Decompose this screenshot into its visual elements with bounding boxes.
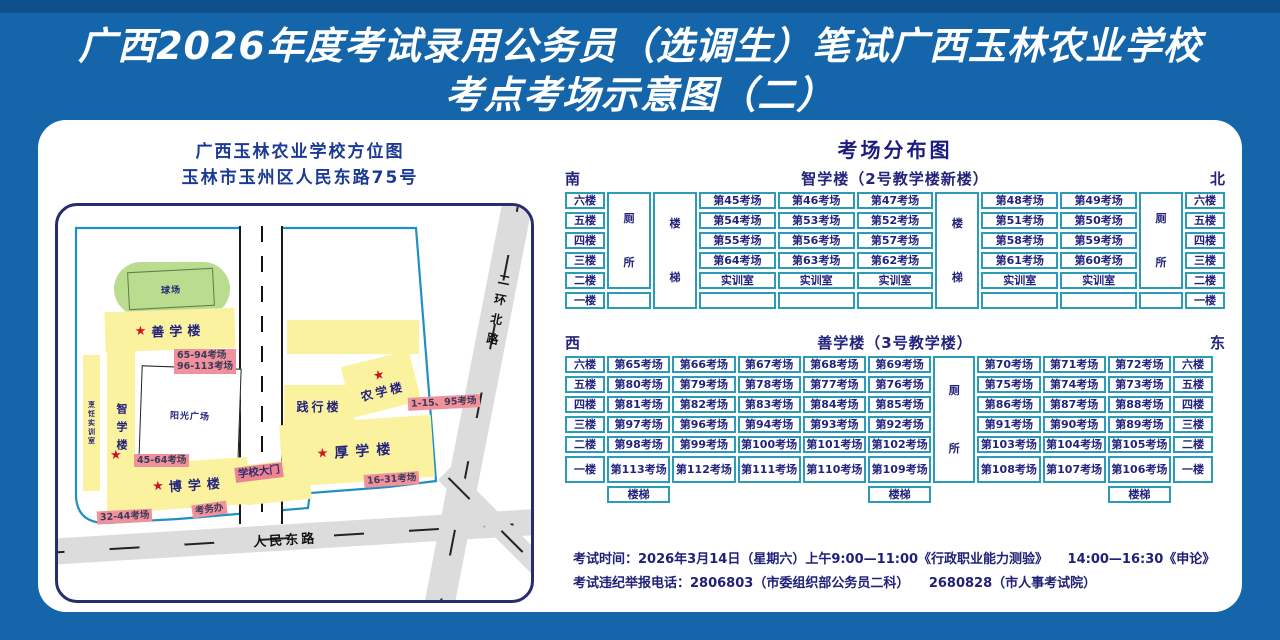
floor-label: 三楼 xyxy=(1173,416,1213,433)
room-cell: 第99考场 xyxy=(672,436,735,453)
star-icon: ★ xyxy=(372,368,386,383)
room-cell: 第78考场 xyxy=(738,376,801,393)
stairs-cell: 楼梯 xyxy=(1108,486,1171,503)
room-cell: 第64考场 xyxy=(699,252,776,269)
room-cell: 第47考场 xyxy=(857,192,934,209)
room-cell: 第107考场 xyxy=(1043,456,1106,483)
room-cell: 第105考场 xyxy=(1108,436,1171,453)
poster-page: 广西2026年度考试录用公务员（选调生）笔试广西玉林农业学校 考点考场示意图（二… xyxy=(0,0,1280,640)
floor-label: 三楼 xyxy=(565,252,605,269)
table1-direction-right: 北 xyxy=(1210,168,1225,189)
empty-cell xyxy=(778,292,855,309)
room-cell: 第101考场 xyxy=(803,436,866,453)
room-cell: 第87考场 xyxy=(1043,396,1106,413)
tag-shanxue-rooms-line1: 65-94考场 xyxy=(177,350,233,361)
room-cell: 第54考场 xyxy=(699,212,776,229)
playground-field: 球场 xyxy=(127,268,215,310)
report-phone-line: 考试违纪举报电话：2806803（市委组织部公务员二科） 2680828（市人事… xyxy=(573,572,1096,591)
room-cell: 第59考场 xyxy=(1060,232,1137,249)
room-cell: 第71考场 xyxy=(1043,356,1106,373)
floor-label: 六楼 xyxy=(1173,356,1213,373)
room-cell: 第58考场 xyxy=(981,232,1058,249)
building-houxue-label: 厚学楼 xyxy=(334,438,398,462)
floor-label: 五楼 xyxy=(1185,212,1225,229)
room-cell: 第62考场 xyxy=(857,252,934,269)
room-cell: 第113考场 xyxy=(607,456,670,483)
room-cell: 第84考场 xyxy=(803,396,866,413)
empty-cell xyxy=(857,292,934,309)
room-cell: 第106考场 xyxy=(1108,456,1171,483)
room-cell: 第80考场 xyxy=(607,376,670,393)
building-boxue-label: 博学楼 xyxy=(168,472,226,495)
room-cell: 第104考场 xyxy=(1043,436,1106,453)
campus-map: 人民东路 二环北路 球场 xyxy=(55,203,534,603)
empty-cell xyxy=(981,292,1058,309)
room-cell: 实训室 xyxy=(699,272,776,289)
room-cell: 第50考场 xyxy=(1060,212,1137,229)
room-cell: 第77考场 xyxy=(803,376,866,393)
top-dark-strip xyxy=(0,0,1280,13)
table2-direction-right: 东 xyxy=(1210,332,1225,353)
floor-label: 三楼 xyxy=(1185,252,1225,269)
star-icon: ★ xyxy=(316,447,329,461)
room-cell: 第85考场 xyxy=(868,396,931,413)
stairs-cell: 楼梯 xyxy=(935,192,979,309)
floor-label: 二楼 xyxy=(565,272,605,289)
room-cell: 第74考场 xyxy=(1043,376,1106,393)
floor-label: 六楼 xyxy=(1185,192,1225,209)
tag-shanxue-rooms-line2: 96-113考场 xyxy=(177,361,233,372)
exam-time-line: 考试时间：2026年3月14日（星期六）上午9:00—11:00《行政职业能力测… xyxy=(573,548,1215,567)
room-cell: 实训室 xyxy=(1060,272,1137,289)
room-cell: 第109考场 xyxy=(868,456,931,483)
floor-label: 六楼 xyxy=(565,192,605,209)
distribution-heading: 考场分布图 xyxy=(565,134,1225,163)
table1-caption: 智学楼（2号教学楼新楼） xyxy=(580,168,1210,189)
room-cell: 第86考场 xyxy=(977,396,1040,413)
room-cell: 第49考场 xyxy=(1060,192,1137,209)
star-icon: ★ xyxy=(110,449,122,462)
poster-title-line2: 考点考场示意图（二） xyxy=(0,71,1280,120)
floor-label: 一楼 xyxy=(1185,292,1225,309)
table2-caption: 善学楼（3号教学楼） xyxy=(580,332,1210,353)
room-cell: 第56考场 xyxy=(778,232,855,249)
room-cell: 实训室 xyxy=(981,272,1058,289)
playground-label: 球场 xyxy=(161,282,182,296)
room-cell: 第102考场 xyxy=(868,436,931,453)
room-cell: 第83考场 xyxy=(738,396,801,413)
star-icon: ★ xyxy=(152,480,165,494)
room-cell: 第79考场 xyxy=(672,376,735,393)
poster-title-line1: 广西2026年度考试录用公务员（选调生）笔试广西玉林农业学校 xyxy=(0,22,1280,71)
room-cell: 第60考场 xyxy=(1060,252,1137,269)
floor-label: 五楼 xyxy=(565,376,605,393)
floor-label: 一楼 xyxy=(1173,456,1213,483)
stairs-cell: 楼梯 xyxy=(607,486,670,503)
room-cell: 第98考场 xyxy=(607,436,670,453)
map-heading: 广西玉林农业学校方位图 玉林市玉州区人民东路75号 xyxy=(50,140,550,191)
sunshine-square-label: 阳光广场 xyxy=(170,408,210,422)
tag-shanxue-rooms: 65-94考场 96-113考场 xyxy=(174,349,236,374)
floor-label: 一楼 xyxy=(565,456,605,483)
room-cell: 第61考场 xyxy=(981,252,1058,269)
content-card: 广西玉林农业学校方位图 玉林市玉州区人民东路75号 人民东路 二环北路 xyxy=(38,120,1242,612)
floor-label: 六楼 xyxy=(565,356,605,373)
table2-direction-left: 西 xyxy=(565,332,580,353)
room-cell: 第57考场 xyxy=(857,232,934,249)
room-cell: 第89考场 xyxy=(1108,416,1171,433)
room-cell: 第112考场 xyxy=(672,456,735,483)
room-cell: 第72考场 xyxy=(1108,356,1171,373)
room-cell: 第52考场 xyxy=(857,212,934,229)
room-cell: 第110考场 xyxy=(803,456,866,483)
room-cell: 第70考场 xyxy=(977,356,1040,373)
room-cell: 实训室 xyxy=(857,272,934,289)
tag-zhixue-rooms: 45-64考场 xyxy=(134,454,189,467)
room-cell: 第48考场 xyxy=(981,192,1058,209)
floor-label: 三楼 xyxy=(565,416,605,433)
building-pengren: 烹饪实训室 xyxy=(83,355,100,491)
table2-caption-row: 西 善学楼（3号教学楼） 东 xyxy=(565,332,1225,353)
map-heading-line2: 玉林市玉州区人民东路75号 xyxy=(50,166,550,192)
room-cell: 第73考场 xyxy=(1108,376,1171,393)
floor-label: 二楼 xyxy=(1185,272,1225,289)
floor-label: 四楼 xyxy=(1185,232,1225,249)
floor-label: 四楼 xyxy=(565,232,605,249)
room-cell: 第82考场 xyxy=(672,396,735,413)
room-cell: 第93考场 xyxy=(803,416,866,433)
room-cell: 第90考场 xyxy=(1043,416,1106,433)
room-cell: 第67考场 xyxy=(738,356,801,373)
floor-label: 一楼 xyxy=(565,292,605,309)
building-jianxing-label: 践行楼 xyxy=(296,398,341,415)
toilet-cell: 厕所 xyxy=(933,356,975,483)
star-icon: ★ xyxy=(134,324,146,337)
table1-direction-left: 南 xyxy=(565,168,580,189)
room-cell: 第76考场 xyxy=(868,376,931,393)
sunshine-square: 阳光广场 xyxy=(138,365,241,465)
room-cell: 第45考场 xyxy=(699,192,776,209)
building-pengren-label: 烹饪实训室 xyxy=(87,401,97,446)
room-cell: 第100考场 xyxy=(738,436,801,453)
table2-shanxue-building: 六楼六楼五楼五楼四楼四楼三楼三楼二楼二楼一楼一楼第65考场第66考场第67考场第… xyxy=(565,356,1213,503)
room-cell: 第53考场 xyxy=(778,212,855,229)
room-cell: 第96考场 xyxy=(672,416,735,433)
room-cell: 第69考场 xyxy=(868,356,931,373)
room-cell: 第81考场 xyxy=(607,396,670,413)
room-cell: 实训室 xyxy=(778,272,855,289)
room-cell: 第68考场 xyxy=(803,356,866,373)
room-cell: 第46考场 xyxy=(778,192,855,209)
room-cell: 第103考场 xyxy=(977,436,1040,453)
empty-cell xyxy=(699,292,776,309)
room-cell: 第75考场 xyxy=(977,376,1040,393)
room-cell: 第63考场 xyxy=(778,252,855,269)
room-cell: 第111考场 xyxy=(738,456,801,483)
building-shanxue-label: 善学楼 xyxy=(151,319,206,340)
empty-cell xyxy=(607,292,651,309)
building-north-strip xyxy=(287,320,419,354)
room-cell: 第88考场 xyxy=(1108,396,1171,413)
empty-cell xyxy=(1060,292,1137,309)
floor-label: 四楼 xyxy=(565,396,605,413)
room-cell: 第92考场 xyxy=(868,416,931,433)
room-cell: 第55考场 xyxy=(699,232,776,249)
poster-title: 广西2026年度考试录用公务员（选调生）笔试广西玉林农业学校 考点考场示意图（二… xyxy=(0,22,1280,119)
map-heading-line1: 广西玉林农业学校方位图 xyxy=(50,140,550,166)
toilet-cell: 厕所 xyxy=(1139,192,1183,289)
room-cell: 第91考场 xyxy=(977,416,1040,433)
stairs-cell: 楼梯 xyxy=(653,192,697,309)
room-cell: 第108考场 xyxy=(977,456,1040,483)
floor-label: 五楼 xyxy=(1173,376,1213,393)
stairs-cell: 楼梯 xyxy=(868,486,931,503)
empty-cell xyxy=(1139,292,1183,309)
floor-label: 二楼 xyxy=(565,436,605,453)
floor-label: 四楼 xyxy=(1173,396,1213,413)
table1-zhixue-building: 六楼六楼五楼五楼四楼四楼三楼三楼二楼二楼一楼一楼第45考场第46考场第47考场第… xyxy=(565,192,1225,309)
room-cell: 第66考场 xyxy=(672,356,735,373)
room-cell: 第51考场 xyxy=(981,212,1058,229)
table1-caption-row: 南 智学楼（2号教学楼新楼） 北 xyxy=(565,168,1225,189)
toilet-cell: 厕所 xyxy=(607,192,651,289)
room-cell: 第65考场 xyxy=(607,356,670,373)
room-cell: 第97考场 xyxy=(607,416,670,433)
floor-label: 二楼 xyxy=(1173,436,1213,453)
room-cell: 第94考场 xyxy=(738,416,801,433)
floor-label: 五楼 xyxy=(565,212,605,229)
